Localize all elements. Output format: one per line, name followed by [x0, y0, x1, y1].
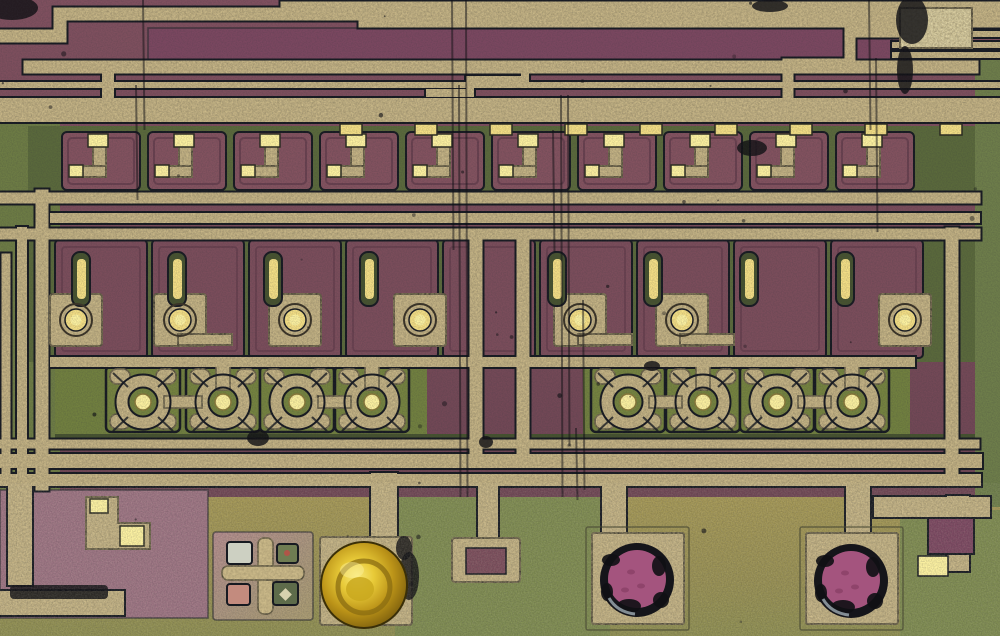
- ic-die-photograph: Integrated circuit die photograph: [0, 0, 1000, 636]
- photo-grain: [0, 0, 1000, 636]
- cross-corner-square: [227, 542, 252, 564]
- gold-ball-bond: [321, 542, 407, 628]
- cross-corner-square: [227, 584, 250, 605]
- alignment-cross-mark: [222, 538, 304, 614]
- grain-overlay: [0, 0, 1000, 636]
- die-photo-svg: [0, 0, 1000, 636]
